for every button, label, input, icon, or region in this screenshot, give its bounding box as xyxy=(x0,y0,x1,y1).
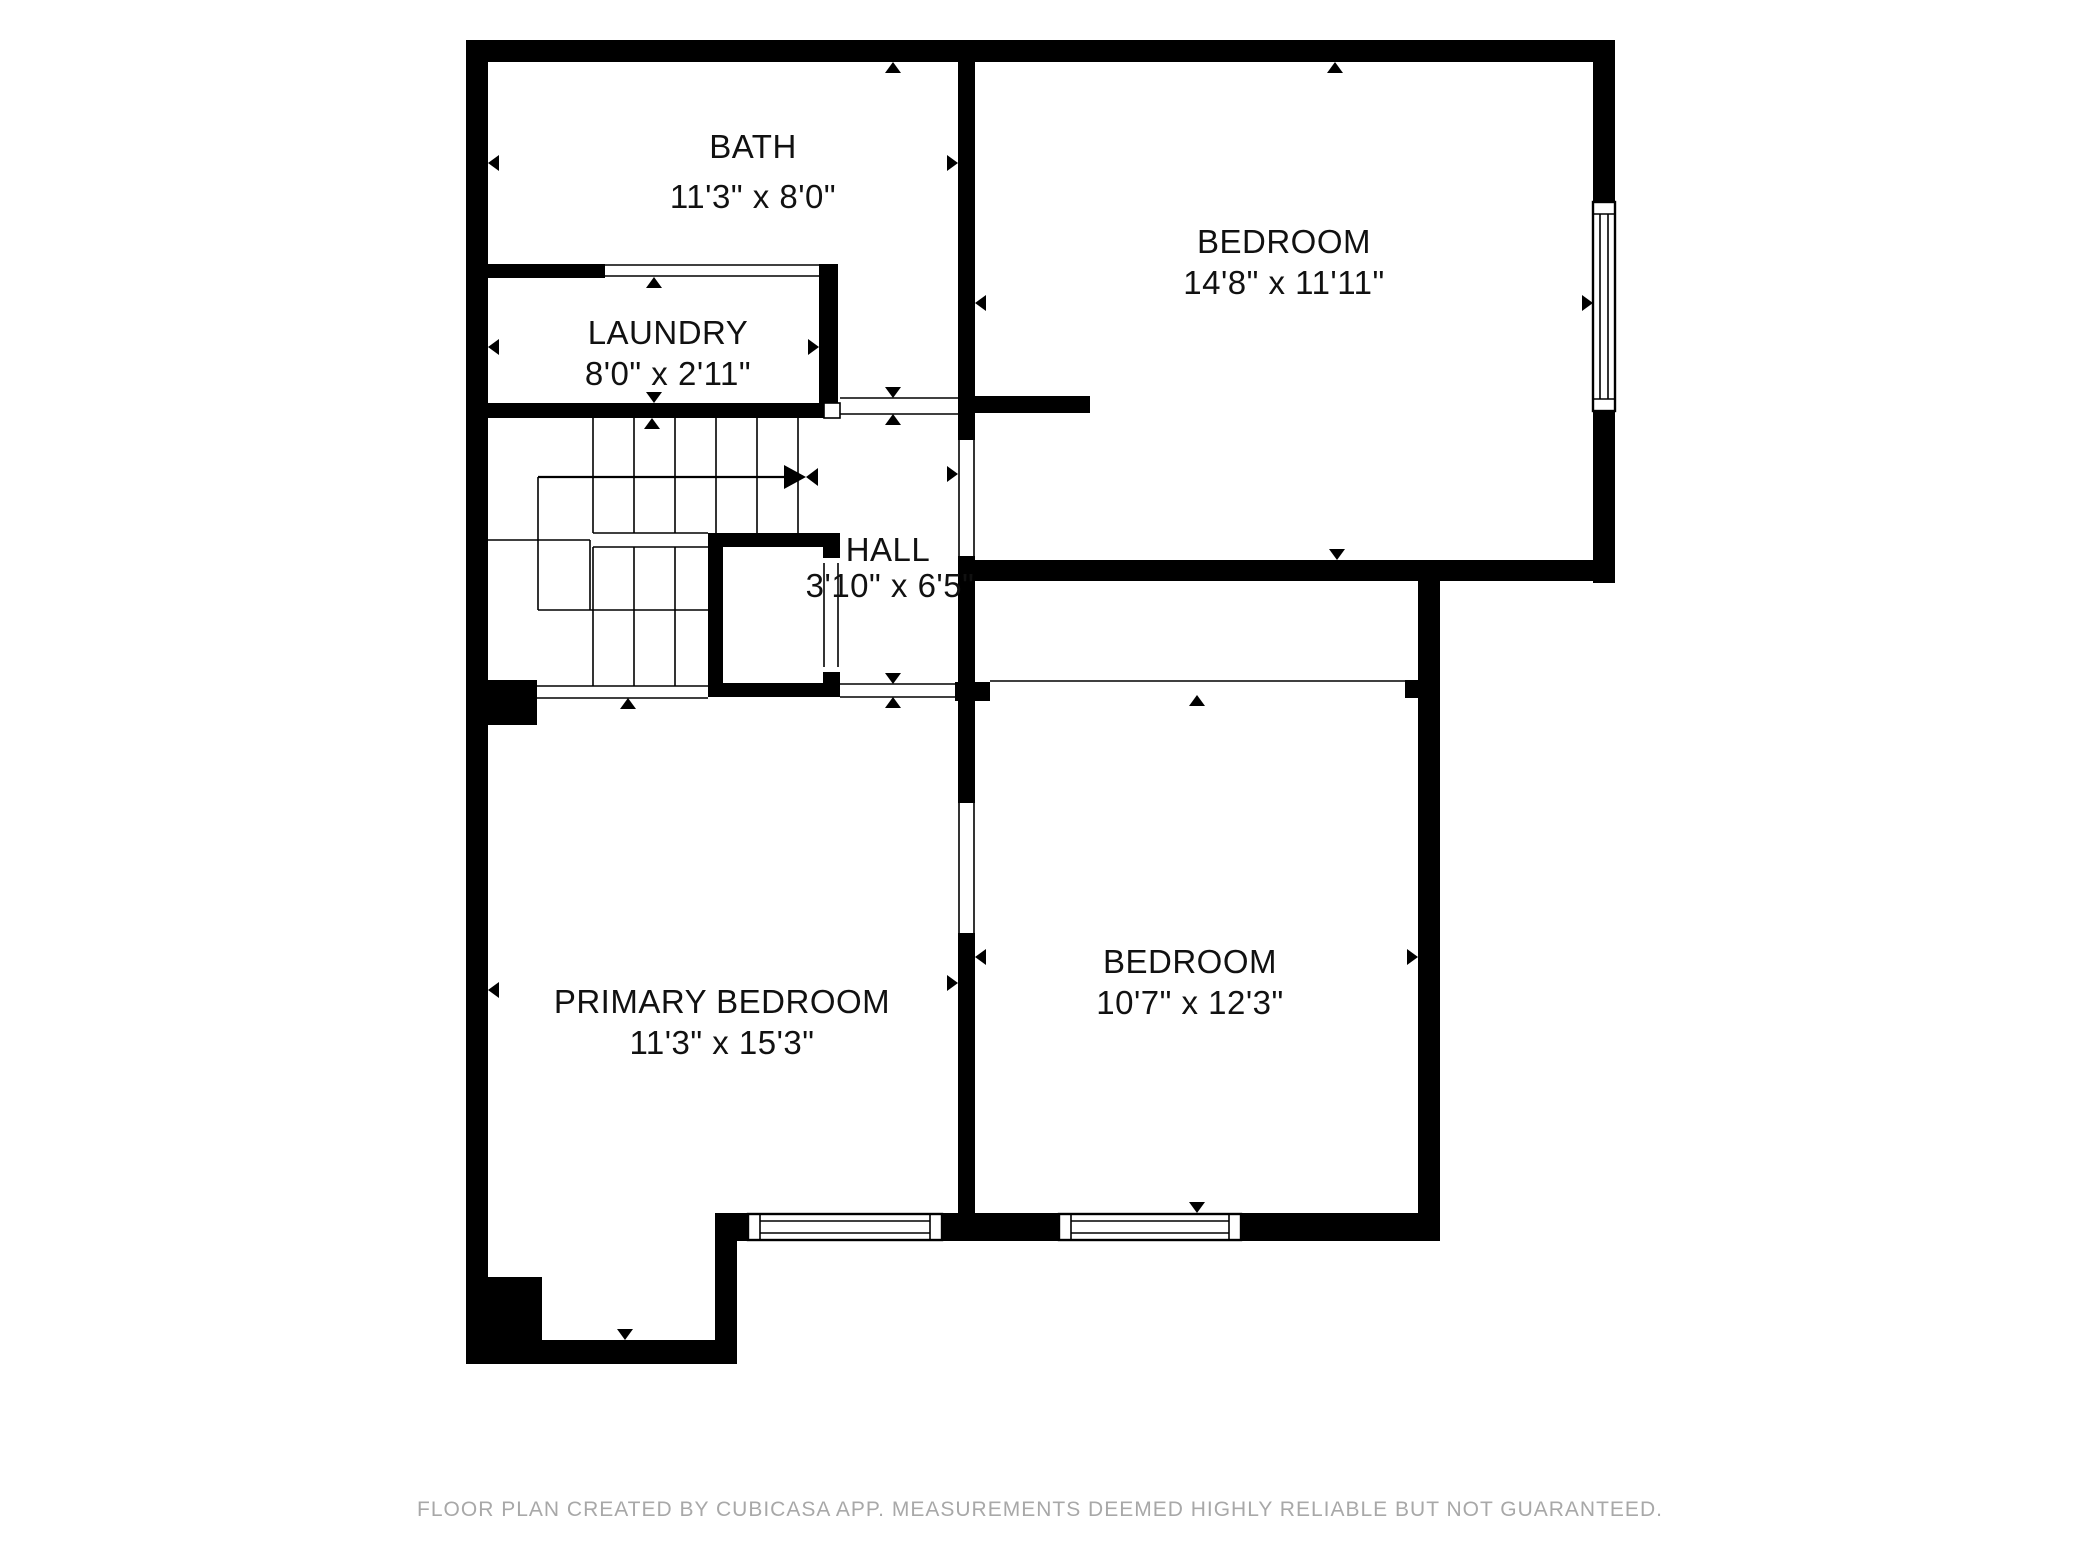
room-dimensions-bedroom-top: 14'8" x 11'11" xyxy=(1183,264,1384,301)
wall-segment xyxy=(708,683,840,697)
arrow-left-icon xyxy=(488,339,499,355)
arrow-left-icon xyxy=(975,295,986,311)
wall-segment xyxy=(958,396,1090,413)
wall-segment xyxy=(958,62,975,396)
wall-segment xyxy=(1593,40,1615,202)
wall-end-cap xyxy=(824,403,840,418)
wall-segment xyxy=(958,413,975,440)
arrow-up-icon xyxy=(885,697,901,708)
arrow-up-icon xyxy=(1327,62,1343,73)
wall-segment xyxy=(466,403,824,418)
wall-segment xyxy=(708,533,723,697)
staircase xyxy=(488,411,818,686)
window xyxy=(748,1214,942,1240)
arrow-down-icon xyxy=(1189,1202,1205,1213)
room-dimensions-hall: 3'10" x 6'5" xyxy=(806,567,975,604)
arrow-down-icon xyxy=(885,387,901,398)
floor-plan-drawing: BATH 11'3" x 8'0" LAUNDRY 8'0" x 2'11" B… xyxy=(0,0,2080,1560)
wall-segment xyxy=(466,1340,737,1364)
wall-segment xyxy=(1418,560,1440,1241)
room-label-hall: HALL xyxy=(846,531,931,568)
arrow-down-icon xyxy=(646,392,662,403)
wall-segment xyxy=(823,672,840,697)
room-dimensions-bath: 11'3" x 8'0" xyxy=(670,178,836,215)
room-dimensions-bedroom-bottom: 10'7" x 12'3" xyxy=(1096,984,1283,1021)
arrow-right-icon xyxy=(1582,295,1593,311)
wall-segment xyxy=(958,933,975,1241)
footer-disclaimer: FLOOR PLAN CREATED BY CUBICASA APP. MEAS… xyxy=(417,1498,1663,1521)
stair-direction-arrowhead xyxy=(784,465,806,489)
window xyxy=(1593,202,1615,411)
arrow-down-icon xyxy=(1329,549,1345,560)
windows xyxy=(748,202,1615,1240)
arrow-right-icon xyxy=(947,975,958,991)
wall-segment xyxy=(715,1213,737,1340)
arrow-left-icon xyxy=(488,982,499,998)
room-label-bedroom-top: BEDROOM xyxy=(1197,223,1371,260)
room-label-bedroom-bottom: BEDROOM xyxy=(1103,943,1277,980)
wall-segment xyxy=(823,533,840,558)
arrow-right-icon xyxy=(947,466,958,482)
floor-plan-page: BATH 11'3" x 8'0" LAUNDRY 8'0" x 2'11" B… xyxy=(0,0,2080,1560)
wall-segment xyxy=(1593,411,1615,583)
arrow-right-icon xyxy=(808,339,819,355)
walls xyxy=(466,40,1615,1364)
room-dimensions-laundry: 8'0" x 2'11" xyxy=(585,355,751,392)
arrow-up-icon xyxy=(620,698,636,709)
hall-left-arrow-icon xyxy=(806,468,818,486)
window xyxy=(1059,1214,1241,1240)
room-label-laundry: LAUNDRY xyxy=(588,314,749,351)
arrow-down-icon xyxy=(617,1329,633,1340)
wall-segment xyxy=(466,264,605,278)
wall-segment xyxy=(466,680,537,725)
arrow-down-icon xyxy=(885,673,901,684)
wall-segment xyxy=(1405,680,1418,698)
arrow-up-icon xyxy=(646,277,662,288)
arrow-right-icon xyxy=(1407,949,1418,965)
room-label-bath: BATH xyxy=(709,128,797,165)
wall-segment xyxy=(466,40,1615,62)
wall-segment xyxy=(708,533,840,547)
wall-segment xyxy=(958,701,975,803)
room-dimensions-primary-bedroom: 11'3" x 15'3" xyxy=(629,1024,814,1061)
arrow-up-icon xyxy=(1189,695,1205,706)
wall-segment xyxy=(958,560,1615,581)
arrow-up-icon xyxy=(885,62,901,73)
wall-segment xyxy=(955,682,990,701)
arrow-left-icon xyxy=(488,155,499,171)
wall-segment xyxy=(1239,1213,1418,1241)
arrow-left-icon xyxy=(975,949,986,965)
arrow-up-icon xyxy=(885,414,901,425)
arrow-right-icon xyxy=(947,155,958,171)
wall-segment xyxy=(466,1277,542,1340)
wall-segment xyxy=(819,264,838,403)
room-label-primary-bedroom: PRIMARY BEDROOM xyxy=(554,983,890,1020)
arrow-up-icon xyxy=(644,418,660,429)
wall-segment xyxy=(940,1213,1059,1241)
